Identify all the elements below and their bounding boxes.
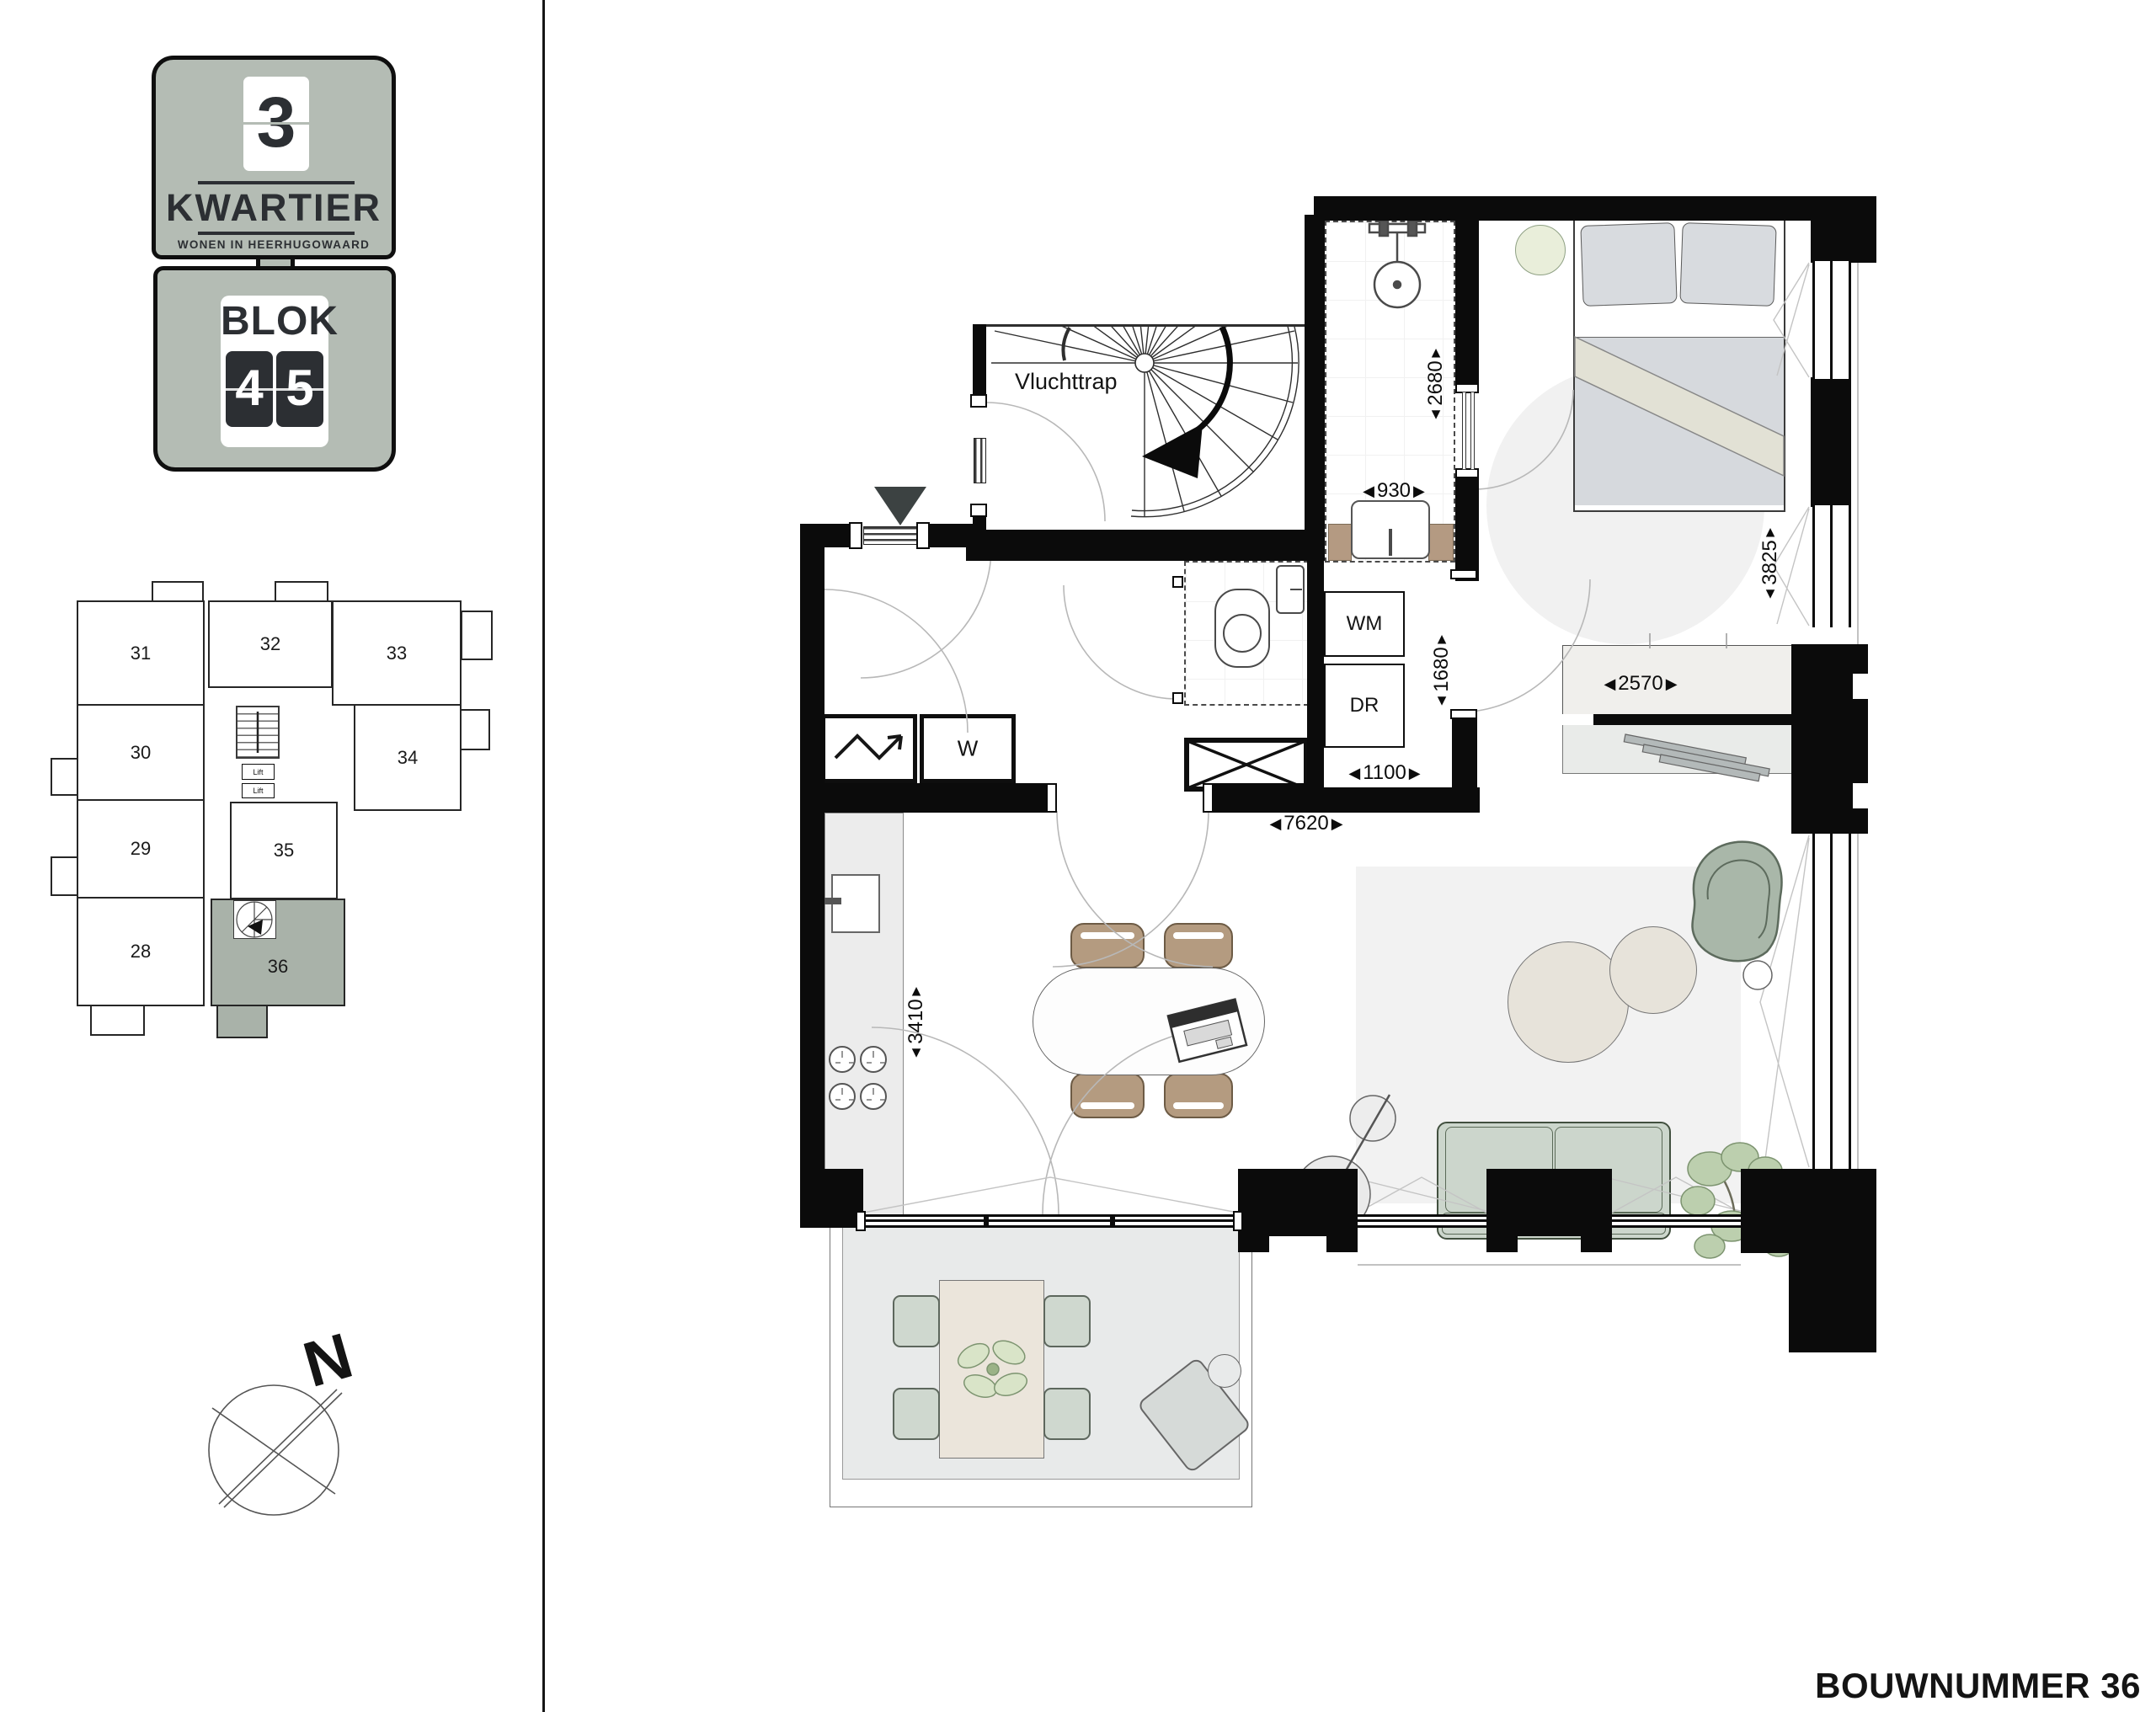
wall-thin bbox=[986, 324, 1305, 327]
window bbox=[1812, 834, 1851, 1169]
triangle-left-icon: ◀ bbox=[1269, 816, 1281, 831]
dim-bath-length: ▲ 2680 ▼ bbox=[1424, 344, 1448, 421]
wall bbox=[1315, 787, 1480, 813]
kitchen-tap-icon bbox=[825, 898, 841, 904]
bath-door-leaf bbox=[1470, 392, 1475, 470]
window bbox=[1612, 1214, 1741, 1228]
wall bbox=[1314, 196, 1876, 221]
dim-value: 3825 bbox=[1758, 540, 1782, 584]
door-frame bbox=[916, 522, 930, 549]
wall bbox=[800, 1169, 863, 1228]
wall bbox=[1581, 1236, 1612, 1252]
triangle-up-icon: ▲ bbox=[1434, 631, 1449, 646]
entry-door-leaf bbox=[863, 526, 917, 545]
toilet-icon bbox=[1215, 566, 1304, 667]
dim-value: 1100 bbox=[1363, 761, 1406, 785]
wall-notch bbox=[1853, 674, 1868, 699]
dim-value: 7620 bbox=[1283, 812, 1328, 835]
laptop-icon bbox=[1168, 1000, 1246, 1062]
triangle-right-icon: ▶ bbox=[1413, 483, 1425, 499]
wall bbox=[1455, 472, 1479, 581]
door-frame bbox=[1455, 383, 1479, 393]
wall bbox=[800, 547, 825, 1169]
triangle-right-icon: ▶ bbox=[1331, 816, 1343, 831]
wall bbox=[1452, 712, 1477, 792]
wall bbox=[1486, 1236, 1518, 1252]
door-frame bbox=[970, 394, 987, 408]
bed-duvet-fold bbox=[1575, 337, 1784, 476]
triangle-right-icon: ▶ bbox=[1666, 676, 1678, 691]
window bbox=[1812, 261, 1851, 379]
compass-icon bbox=[209, 1385, 342, 1515]
door-frame bbox=[1450, 569, 1477, 579]
spiral-stair bbox=[986, 211, 1299, 521]
bath-door-leaf bbox=[1462, 392, 1466, 470]
dim-apartment-width: ◀ 7620 ▶ bbox=[1269, 812, 1342, 835]
hob-marks bbox=[835, 1051, 885, 1100]
door-frame bbox=[1172, 692, 1183, 704]
dim-value: 1680 bbox=[1430, 647, 1454, 691]
mullion bbox=[984, 1214, 989, 1228]
dim-closet-width: ◀ 2570 ▶ bbox=[1604, 672, 1677, 696]
wall bbox=[1486, 1169, 1612, 1236]
dim-value: 930 bbox=[1377, 479, 1411, 503]
wall bbox=[1593, 714, 1791, 725]
wall bbox=[1455, 215, 1479, 390]
door-frame bbox=[1172, 576, 1183, 588]
room-label-w: W bbox=[958, 736, 979, 762]
triangle-down-icon: ▼ bbox=[1428, 407, 1444, 422]
wall-notch bbox=[1853, 783, 1868, 808]
escape-door-leaf bbox=[974, 438, 986, 483]
door-frame bbox=[849, 522, 862, 549]
clothes-rail-icon bbox=[1624, 734, 1769, 781]
room-label-wm: WM bbox=[1347, 612, 1383, 636]
triangle-down-icon: ▼ bbox=[1763, 586, 1778, 601]
door-frame bbox=[1450, 709, 1477, 719]
door-frame bbox=[1455, 468, 1479, 478]
triangle-down-icon: ▼ bbox=[909, 1045, 924, 1060]
wall bbox=[800, 783, 1053, 813]
mullion bbox=[1110, 1214, 1115, 1228]
dim-utility-width: ◀ 1100 ▶ bbox=[1348, 761, 1420, 785]
room-label-dr: DR bbox=[1350, 694, 1380, 717]
window bbox=[1358, 1214, 1486, 1228]
wall bbox=[1811, 377, 1851, 507]
balcony-door-window bbox=[863, 1214, 1238, 1228]
window bbox=[1812, 505, 1851, 627]
balcony-plant-icon bbox=[954, 1336, 1030, 1401]
triangle-down-icon: ▼ bbox=[1434, 693, 1449, 708]
shaft-cross-icon bbox=[1187, 741, 1305, 788]
wall bbox=[1789, 1253, 1876, 1352]
closet-ticks bbox=[1650, 633, 1726, 648]
shower-icon bbox=[1369, 221, 1425, 307]
triangle-up-icon: ▲ bbox=[1428, 344, 1444, 360]
site-spiral-icon bbox=[237, 902, 272, 937]
wall bbox=[1238, 1169, 1358, 1236]
lounge-chair-icon bbox=[1692, 842, 1781, 989]
dim-value: 2570 bbox=[1618, 672, 1662, 696]
wall bbox=[1307, 561, 1324, 792]
triangle-left-icon: ◀ bbox=[1363, 483, 1374, 499]
wall bbox=[1326, 1236, 1358, 1252]
floorplan-sheet: 3 KWARTIER WONEN IN HEERHUGOWAARD BLOK 4… bbox=[0, 0, 2156, 1712]
triangle-left-icon: ◀ bbox=[1348, 765, 1360, 781]
room-label-escape-stair: Vluchttrap bbox=[1015, 369, 1118, 395]
door-frame bbox=[856, 1211, 866, 1231]
dim-bedroom-length: ▲ 3825 ▼ bbox=[1758, 524, 1782, 600]
wall bbox=[1238, 1236, 1269, 1252]
dim-value: 3410 bbox=[905, 999, 928, 1043]
sheet-title: BOUWNUMMER 36 bbox=[1815, 1666, 2141, 1706]
dim-bath-width: ◀ 930 ▶ bbox=[1363, 479, 1425, 503]
wall bbox=[973, 324, 986, 398]
wall bbox=[1213, 783, 1315, 813]
meter-zigzag-icon bbox=[835, 736, 901, 758]
wall bbox=[966, 530, 1315, 561]
door-frame bbox=[1203, 783, 1214, 813]
triangle-left-icon: ◀ bbox=[1604, 676, 1615, 691]
wall bbox=[1305, 215, 1325, 561]
dim-kitchen-length: ▲ 3410 ▼ bbox=[905, 983, 928, 1059]
triangle-up-icon: ▲ bbox=[1763, 524, 1778, 539]
dim-value: 2680 bbox=[1424, 360, 1448, 405]
triangle-up-icon: ▲ bbox=[909, 983, 924, 998]
door-frame bbox=[970, 504, 987, 517]
triangle-right-icon: ▶ bbox=[1409, 765, 1421, 781]
dim-utility-length: ▲ 1680 ▼ bbox=[1430, 631, 1454, 707]
wall bbox=[1811, 196, 1876, 263]
wall bbox=[1741, 1169, 1876, 1253]
door-frame bbox=[1046, 783, 1057, 813]
door-frame bbox=[1233, 1211, 1243, 1231]
